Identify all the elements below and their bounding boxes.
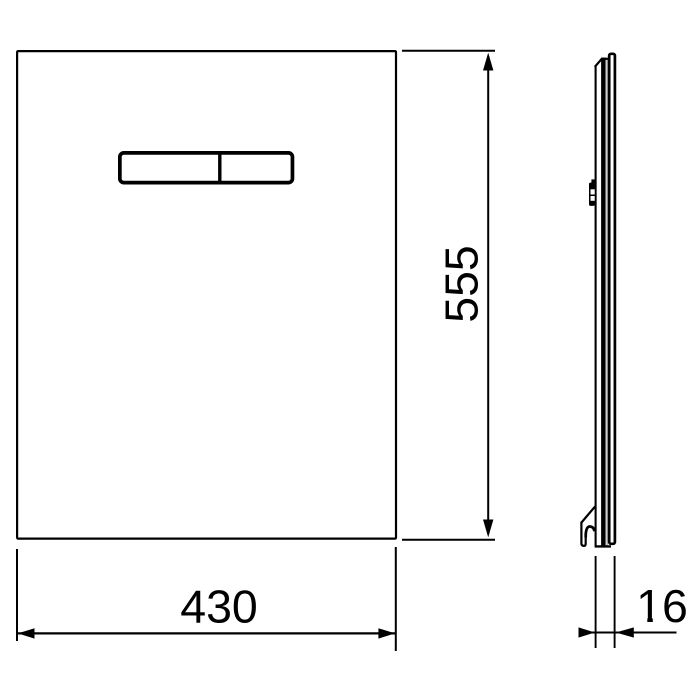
- svg-text:16: 16: [636, 580, 688, 632]
- svg-text:555: 555: [435, 245, 487, 323]
- svg-text:430: 430: [180, 581, 258, 633]
